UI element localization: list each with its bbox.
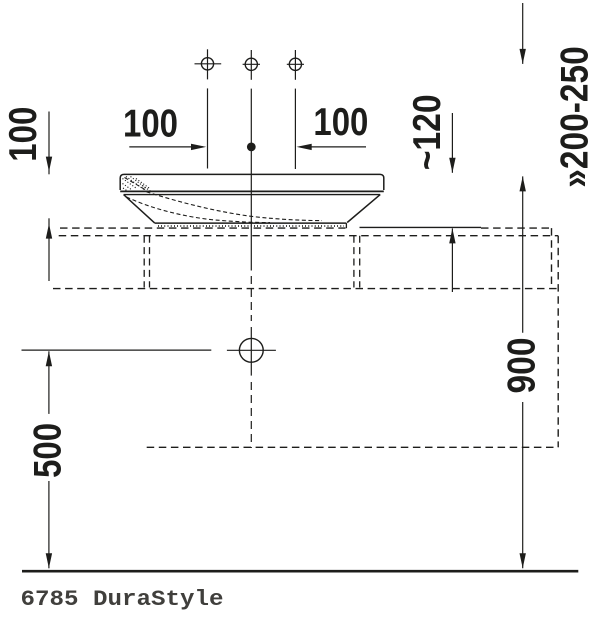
svg-text:~120: ~120 bbox=[406, 94, 449, 170]
svg-text:»200-250: »200-250 bbox=[554, 46, 597, 188]
svg-text:100: 100 bbox=[123, 102, 178, 145]
svg-text:100: 100 bbox=[313, 101, 368, 144]
svg-text:6785 DuraStyle: 6785 DuraStyle bbox=[21, 587, 224, 612]
svg-text:900: 900 bbox=[500, 338, 543, 394]
svg-text:100: 100 bbox=[2, 107, 45, 162]
svg-text:500: 500 bbox=[27, 423, 70, 478]
